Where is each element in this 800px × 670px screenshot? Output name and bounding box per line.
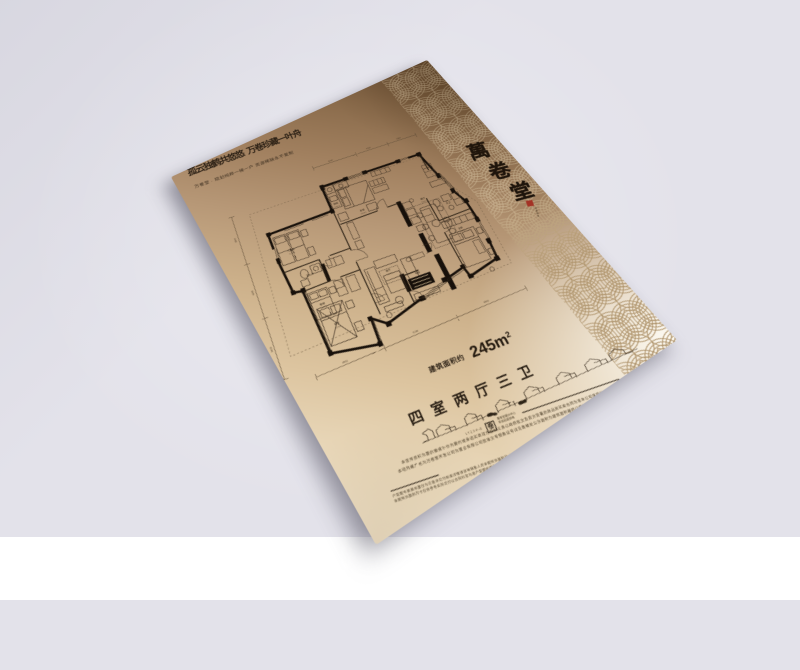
svg-text:3900: 3900 bbox=[234, 237, 238, 243]
svg-text:卫生间: 卫生间 bbox=[305, 271, 314, 278]
svg-text:客房: 客房 bbox=[319, 301, 326, 307]
svg-text:厨房: 厨房 bbox=[333, 201, 339, 206]
svg-text:2900: 2900 bbox=[396, 137, 402, 140]
svg-text:餐厅: 餐厅 bbox=[419, 196, 425, 201]
svg-text:主卧: 主卧 bbox=[457, 225, 465, 231]
svg-text:4200: 4200 bbox=[251, 289, 255, 296]
svg-text:卧室: 卧室 bbox=[333, 320, 340, 326]
svg-text:卧室: 卧室 bbox=[359, 207, 365, 212]
svg-text:3300: 3300 bbox=[366, 147, 372, 150]
svg-text:4500: 4500 bbox=[342, 360, 350, 365]
svg-text:儿童房: 儿童房 bbox=[286, 247, 295, 253]
svg-text:主卫: 主卫 bbox=[445, 200, 451, 205]
